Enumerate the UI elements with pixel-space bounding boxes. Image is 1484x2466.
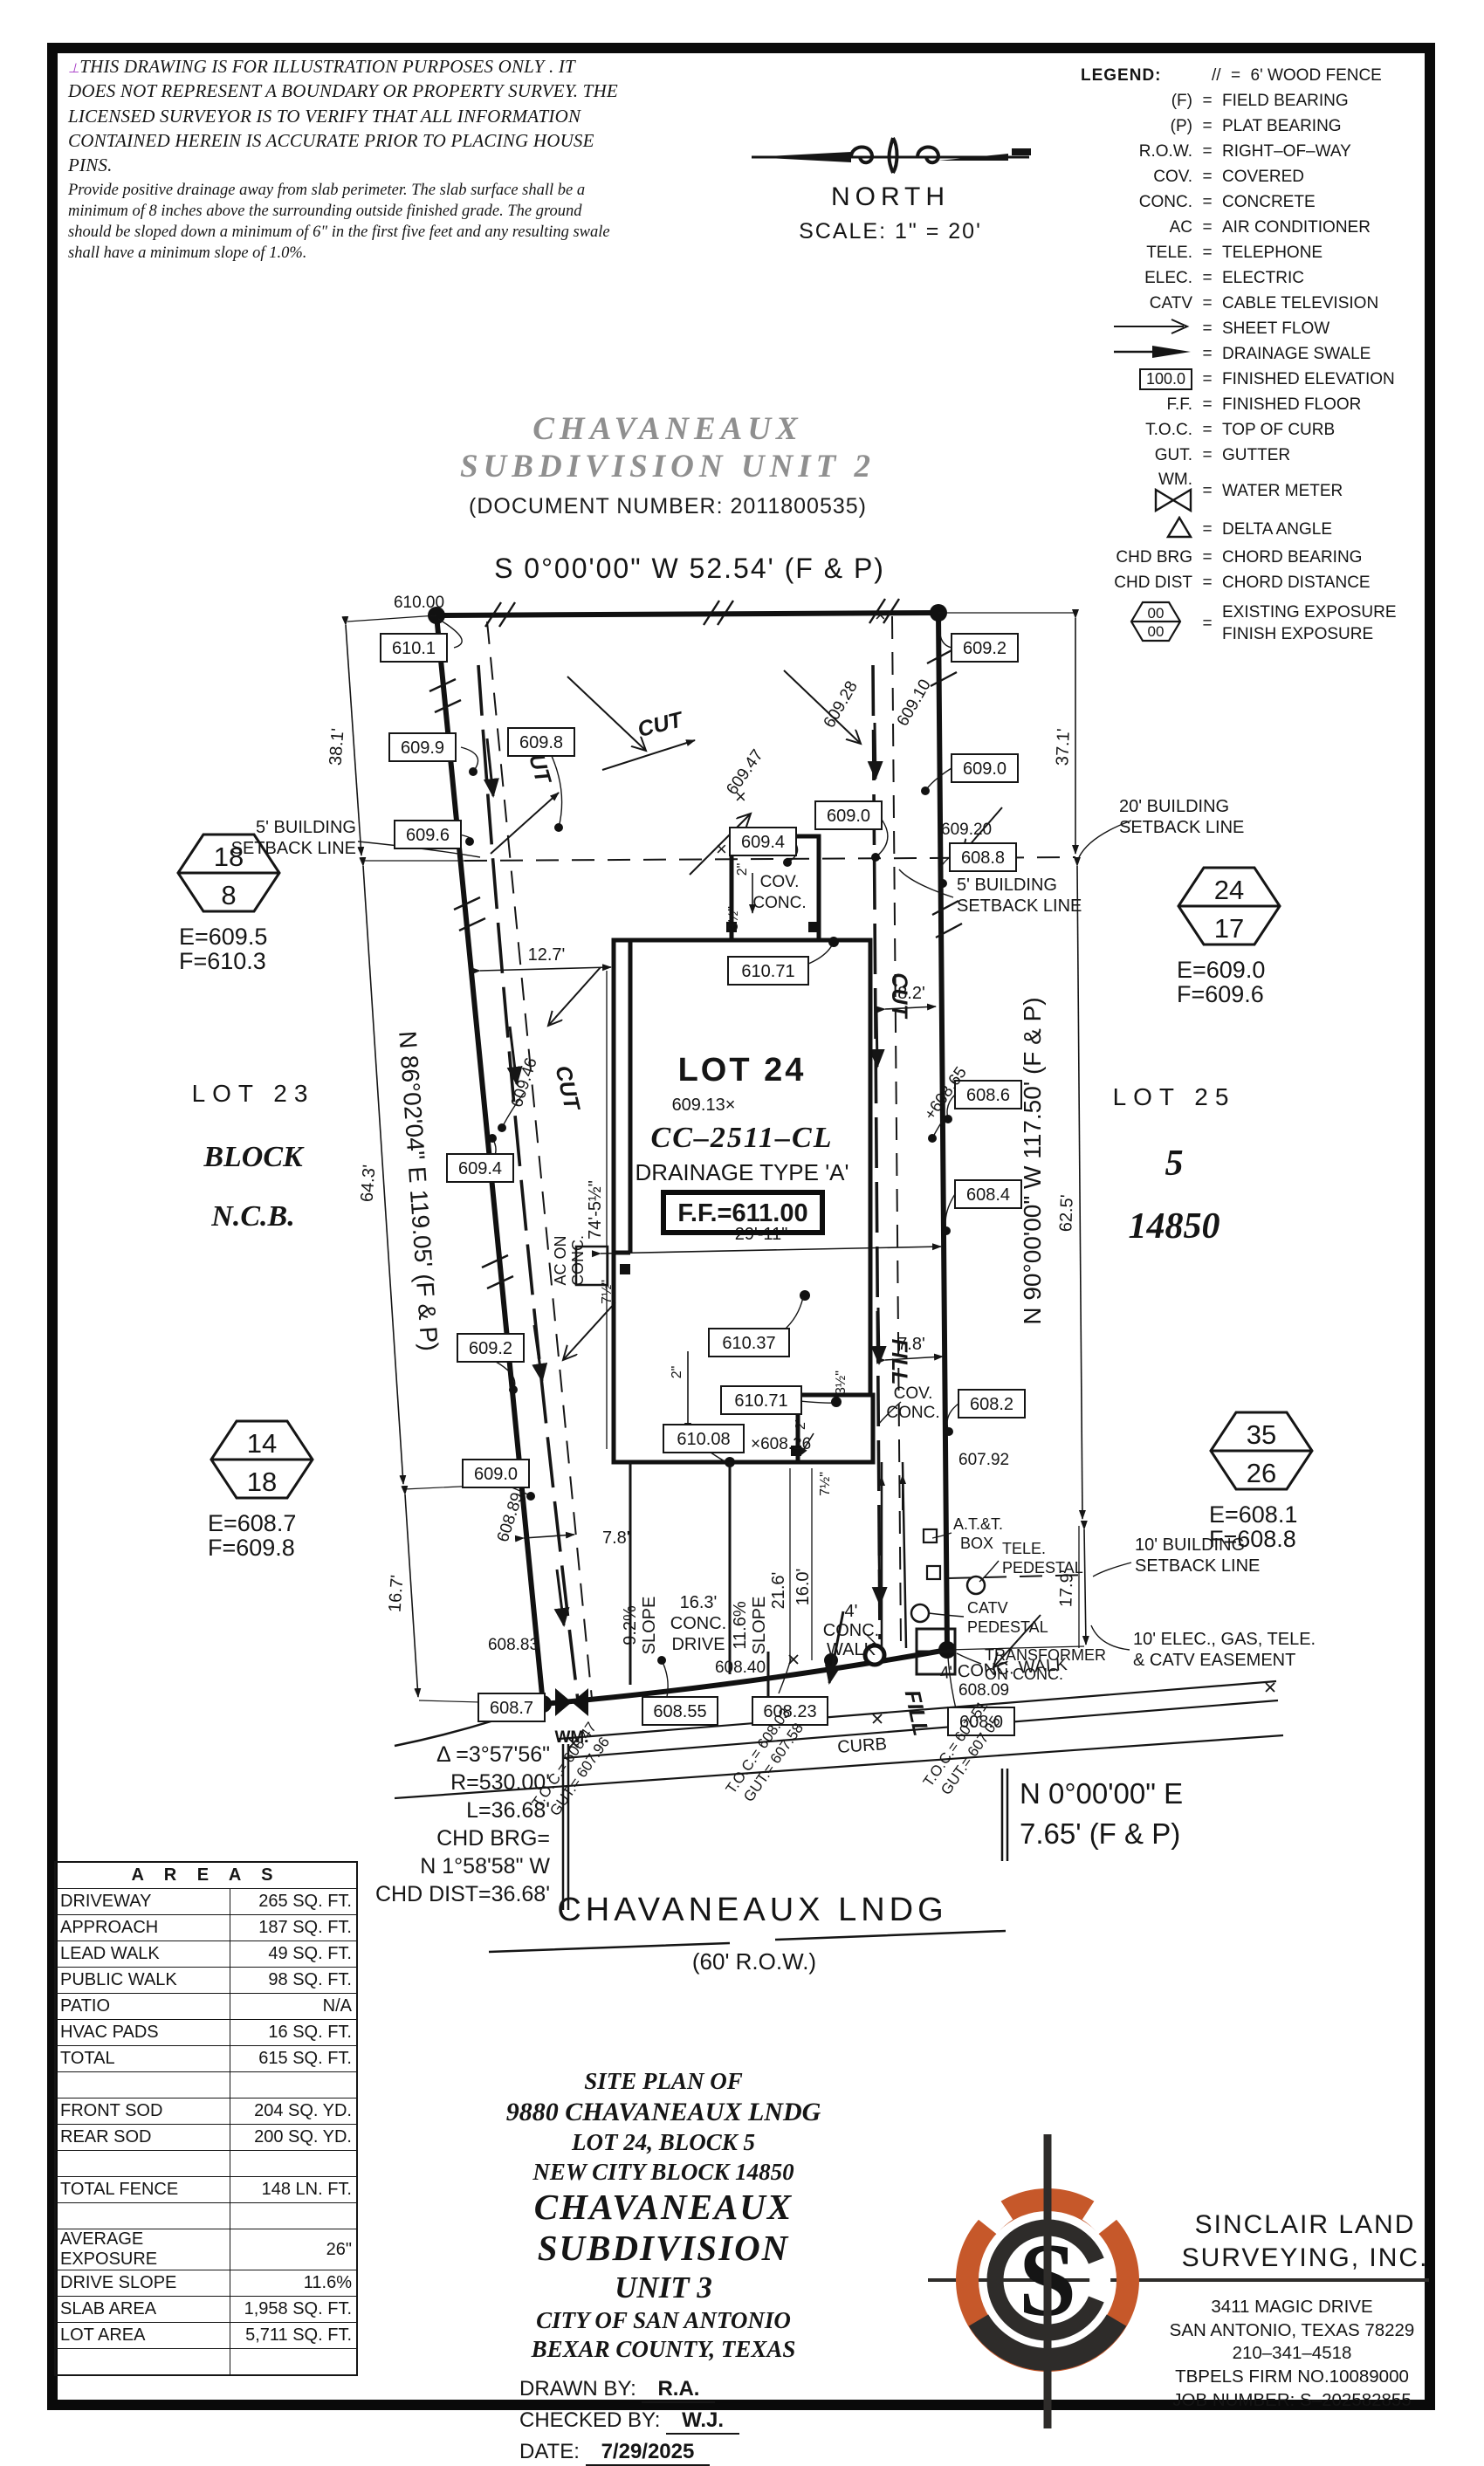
elev-box: 609.8: [508, 728, 574, 756]
svg-text:CONC.: CONC.: [886, 1404, 939, 1422]
areas-row: TOTAL615 SQ. FT.: [56, 2045, 356, 2071]
bearing-se: N 0°00'00" E 7.65' (F & P): [1002, 1769, 1183, 1861]
firm-name: SINCLAIR LANDSURVEYING, INC.: [1178, 2208, 1432, 2274]
svg-text:WALK: WALK: [827, 1640, 876, 1659]
svg-text:608.83: 608.83: [488, 1636, 539, 1654]
hex-se: 35 26 E=608.1 F=608.8: [1209, 1412, 1312, 1552]
areas-row: LEAD WALK49 SQ. FT.: [56, 1941, 356, 1967]
svg-text:7½": 7½": [818, 1472, 833, 1496]
svg-text:SETBACK LINE: SETBACK LINE: [231, 839, 356, 858]
svg-text:20' BUILDING: 20' BUILDING: [1119, 797, 1229, 816]
legend-row: CHD BRG=CHORD BEARING: [1081, 545, 1430, 570]
svg-text:26: 26: [1247, 1458, 1276, 1488]
disclaimer-note: ⊥THIS DRAWING IS FOR ILLUSTRATION PURPOS…: [68, 54, 618, 264]
elev-box: 610.71: [721, 1386, 801, 1414]
delta-angle-icon: [1166, 516, 1192, 539]
svg-text:16.7': 16.7': [386, 1574, 408, 1612]
firm-address: 3411 MAGIC DRIVE SAN ANTONIO, TEXAS 7822…: [1148, 2296, 1436, 2412]
svg-text:24: 24: [1214, 875, 1244, 905]
legend-row: (P)=PLAT BEARING: [1081, 113, 1430, 139]
elev-box: 608.7: [478, 1693, 545, 1721]
svg-text:CONC.: CONC.: [752, 894, 806, 912]
elev-box: 608.4: [955, 1180, 1021, 1208]
svg-text:SETBACK LINE: SETBACK LINE: [957, 896, 1082, 916]
svg-text:CUT: CUT: [550, 1063, 584, 1115]
exposure-hexagons: 18 8 E=609.5 F=610.3 24 17 E=609.0 F=609…: [178, 835, 1312, 1561]
svg-text:609.4: 609.4: [741, 833, 785, 852]
att-box-icon: [924, 1529, 937, 1542]
areas-row-blank: [56, 2150, 356, 2176]
catv-pedestal-icon: [911, 1604, 929, 1622]
svg-text:F=609.8: F=609.8: [208, 1535, 295, 1561]
svg-text:BOX: BOX: [960, 1535, 993, 1552]
svg-text:ON CONC.: ON CONC.: [985, 1666, 1063, 1683]
tele-pedestal-icon: [967, 1576, 985, 1594]
legend-row: CATV=CABLE TELEVISION: [1081, 291, 1430, 316]
svg-text:TELE.: TELE.: [1002, 1540, 1046, 1557]
svg-text:609.20: 609.20: [941, 821, 992, 839]
title-ncb: NEW CITY BLOCK 14850: [410, 2158, 917, 2188]
svg-text:BLOCK: BLOCK: [203, 1141, 305, 1173]
svg-text:CC–2511–CL: CC–2511–CL: [651, 1122, 834, 1154]
svg-text:E=609.5: E=609.5: [179, 924, 267, 950]
svg-text:PEDESTAL: PEDESTAL: [1002, 1559, 1083, 1576]
svg-text:610.00: 610.00: [394, 594, 444, 612]
elev-box: 609.4: [730, 828, 796, 855]
subdivision2-document-number: (DOCUMENT NUMBER: 2011800535): [367, 494, 969, 519]
svg-text:A.T.&T.: A.T.&T.: [953, 1515, 1003, 1533]
areas-row-blank: [56, 2348, 356, 2374]
svg-text:×608.26: ×608.26: [751, 1435, 811, 1453]
svg-text:CONC.: CONC.: [823, 1621, 879, 1640]
svg-text:CONC.: CONC.: [569, 1235, 587, 1286]
elev-box: 608.2: [958, 1390, 1025, 1418]
areas-row: REAR SOD200 SQ. YD.: [56, 2124, 356, 2150]
svg-text:TRANSFORMER: TRANSFORMER: [985, 1646, 1106, 1664]
svg-text:610.08: 610.08: [677, 1430, 730, 1449]
title-credits: DRAWN BY: R.A. CHECKED BY: W.J. DATE: 7/…: [519, 2377, 807, 2466]
bearing-east-line: N 90°00'00" W 117.50' (F & P): [1019, 997, 1046, 1324]
svg-text:608.2: 608.2: [970, 1395, 1013, 1414]
areas-row: AVERAGE EXPOSURE26": [56, 2229, 356, 2270]
svg-text:608.09: 608.09: [958, 1681, 1009, 1700]
svg-text:2': 2': [794, 1419, 808, 1430]
svg-text:2": 2": [670, 1366, 684, 1379]
svg-text:8.2': 8.2': [897, 984, 925, 1003]
svg-text:4': 4': [845, 1602, 858, 1621]
legend-row: TELE.=TELEPHONE: [1081, 240, 1430, 265]
subdivision2-line1: CHAVANEAUX: [367, 410, 969, 448]
firm-city: SAN ANTONIO, TEXAS 78229: [1148, 2319, 1436, 2343]
svg-text:5' BUILDING: 5' BUILDING: [256, 818, 356, 837]
svg-text:12.7': 12.7': [528, 945, 566, 965]
water-meter-icon: [555, 1688, 588, 1716]
svg-text:N.C.B.: N.C.B.: [210, 1200, 294, 1233]
svg-text:×: ×: [735, 786, 746, 807]
svg-text:608.7: 608.7: [490, 1699, 533, 1718]
title-address: 9880 CHAVANEAUX LNDG: [410, 2097, 917, 2128]
att-box-icon2: [927, 1566, 940, 1579]
svg-text:608.89: 608.89: [494, 1490, 527, 1544]
svg-text:(60' R.O.W.): (60' R.O.W.): [692, 1948, 816, 1975]
svg-text:38.1': 38.1': [326, 727, 348, 766]
areas-row: DRIVE SLOPE11.6%: [56, 2270, 356, 2296]
svg-text:608.8: 608.8: [961, 848, 1005, 868]
legend-row-drainage-swale: =DRAINAGE SWALE: [1081, 341, 1430, 367]
title-block: SITE PLAN OF 9880 CHAVANEAUX LNDG LOT 24…: [410, 2067, 917, 2466]
legend-row: COV.=COVERED: [1081, 164, 1430, 189]
svg-text:CHD DIST=36.68': CHD DIST=36.68': [375, 1882, 550, 1906]
utility-labels: A.T.&T. BOX TELE. PEDESTAL CATV PEDESTAL…: [953, 1515, 1106, 1683]
svg-text:N 0°00'00" E: N 0°00'00" E: [1020, 1777, 1183, 1810]
legend-row-water-meter: WM.=WATER METER: [1081, 468, 1430, 515]
svg-text:5' BUILDING: 5' BUILDING: [957, 876, 1057, 895]
svg-text:00: 00: [1148, 605, 1165, 622]
firm-phone: 210–341–4518: [1148, 2342, 1436, 2366]
svg-text:609.2: 609.2: [469, 1339, 512, 1358]
exposure-hex-icon: 0000: [1119, 595, 1192, 648]
title-line1: SITE PLAN OF: [410, 2067, 917, 2097]
elev-box: 609.2: [457, 1334, 524, 1362]
title-county: BEXAR COUNTY, TEXAS: [410, 2335, 917, 2365]
elev-box: 610.08: [663, 1425, 744, 1453]
elev-box: 608.8: [950, 843, 1016, 871]
areas-row: LOT AREA5,711 SQ. FT.: [56, 2322, 356, 2348]
svg-text:8: 8: [221, 880, 236, 910]
svg-text:SETBACK LINE: SETBACK LINE: [1135, 1556, 1260, 1576]
areas-row: PUBLIC WALK98 SQ. FT.: [56, 1967, 356, 1993]
legend-row: F.F.=FINISHED FLOOR: [1081, 392, 1430, 417]
svg-text:AC ON: AC ON: [552, 1235, 569, 1285]
svg-text:610.37: 610.37: [722, 1334, 775, 1353]
svg-text:18: 18: [214, 841, 244, 872]
svg-text:7½": 7½": [600, 1280, 615, 1304]
areas-row: PATION/A: [56, 1993, 356, 2019]
svg-text:LOT 25: LOT 25: [1113, 1083, 1236, 1110]
svg-text:609.6: 609.6: [406, 826, 450, 845]
elev-box: 610.37: [709, 1329, 789, 1357]
svg-text:16.3': 16.3': [680, 1593, 718, 1612]
areas-row-blank: [56, 2202, 356, 2229]
svg-text:3½": 3½": [726, 906, 741, 931]
elev-box: 609.9: [389, 733, 456, 761]
elev-box: 610.1: [381, 634, 447, 662]
svg-text:7.65' (F & P): 7.65' (F & P): [1020, 1817, 1180, 1850]
svg-text:CHD BRG=: CHD BRG=: [436, 1826, 550, 1851]
areas-row: DRIVEWAY265 SQ. FT.: [56, 1888, 356, 1914]
water-meter-legend-icon: [1154, 488, 1192, 512]
svg-text:17: 17: [1214, 913, 1244, 944]
svg-text:608.55: 608.55: [653, 1702, 706, 1721]
areas-row: TOTAL FENCE148 LN. FT.: [56, 2176, 356, 2202]
svg-text:E=608.7: E=608.7: [208, 1510, 296, 1536]
svg-text:610.71: 610.71: [734, 1391, 787, 1411]
svg-text:PEDESTAL: PEDESTAL: [967, 1618, 1048, 1636]
checked-by-label: CHECKED BY:: [519, 2408, 660, 2432]
svg-text:609.28: 609.28: [821, 678, 862, 732]
svg-text:3½": 3½": [834, 1370, 848, 1395]
svg-text:F=609.6: F=609.6: [1177, 981, 1264, 1007]
title-unit: UNIT 3: [410, 2270, 917, 2306]
survey-sheet: { "disclaimer": { "mark": "⊥", "p1": "TH…: [0, 0, 1484, 2444]
svg-text:18: 18: [247, 1467, 277, 1497]
svg-text:SETBACK LINE: SETBACK LINE: [1119, 818, 1244, 837]
checked-by-value: W.J.: [666, 2408, 739, 2435]
svg-text:609.4: 609.4: [458, 1159, 502, 1178]
svg-text:F=608.8: F=608.8: [1209, 1526, 1296, 1552]
elev-box: 609.0: [463, 1460, 529, 1487]
svg-text:21.6': 21.6': [769, 1572, 788, 1610]
svg-text:609.2: 609.2: [963, 639, 1007, 658]
svg-text:14: 14: [247, 1428, 277, 1459]
areas-row: FRONT SOD204 SQ. YD.: [56, 2098, 356, 2124]
svg-text:35: 35: [1247, 1419, 1276, 1450]
firm-job-number: JOB NUMBER: S–202582855: [1148, 2389, 1436, 2413]
bearing-north-line: S 0°00'00" W 52.54' (F & P): [494, 553, 885, 584]
elev-box: 608.55: [642, 1697, 718, 1725]
lot24-labels: LOT 24 609.13× CC–2511–CL DRAINAGE TYPE …: [636, 1052, 849, 1233]
svg-text:×: ×: [875, 604, 886, 626]
svg-text:608.40: 608.40: [715, 1659, 766, 1677]
svg-text:608.4: 608.4: [966, 1185, 1010, 1205]
areas-header: A R E A S: [56, 1863, 356, 1888]
legend-row: GUT.=GUTTER: [1081, 443, 1430, 468]
svg-text:E=609.0: E=609.0: [1177, 957, 1265, 983]
drawn-by-label: DRAWN BY:: [519, 2377, 636, 2401]
svg-text:Δ =3°57'56": Δ =3°57'56": [436, 1742, 550, 1767]
svg-text:609.0: 609.0: [963, 759, 1007, 779]
svg-text:609.0: 609.0: [827, 807, 870, 826]
svg-text:610.1: 610.1: [392, 639, 436, 658]
elev-box: 609.4: [447, 1154, 513, 1182]
svg-text:COV.: COV.: [894, 1384, 933, 1403]
elev-box: 608.23: [752, 1697, 828, 1725]
legend-row: (F)=FIELD BEARING: [1081, 88, 1430, 113]
svg-text:COV.: COV.: [760, 873, 800, 891]
svg-text:DRAINAGE TYPE 'A': DRAINAGE TYPE 'A': [636, 1159, 849, 1185]
date-label: DATE:: [519, 2440, 580, 2463]
svg-text:7.8': 7.8': [897, 1335, 925, 1354]
subdivision2-line2: SUBDIVISION UNIT 2: [367, 448, 969, 485]
svg-text:F.F.=611.00: F.F.=611.00: [677, 1199, 807, 1227]
svg-text:CATV: CATV: [967, 1599, 1008, 1617]
svg-text:62.5': 62.5': [1056, 1194, 1076, 1232]
firm-street: 3411 MAGIC DRIVE: [1148, 2296, 1436, 2319]
areas-row: HVAC PADS16 SQ. FT.: [56, 2019, 356, 2045]
hex-ne: 24 17 E=609.0 F=609.6: [1177, 868, 1280, 1007]
plumb-mark: ⊥: [68, 62, 79, 76]
title-city: CITY OF SAN ANTONIO: [410, 2306, 917, 2336]
legend-row: AC=AIR CONDITIONER: [1081, 215, 1430, 240]
svg-text:16.0': 16.0': [794, 1569, 813, 1606]
elev-box: 609.0: [952, 754, 1018, 782]
svg-text:CONC.: CONC.: [670, 1614, 726, 1633]
disclaimer-paragraph-2: Provide positive drainage away from slab…: [68, 180, 618, 264]
legend-row-finished-elevation: 100.0=FINISHED ELEVATION: [1081, 367, 1430, 392]
title-subdivision: CHAVANEAUX SUBDIVISION: [410, 2187, 917, 2269]
svg-text:00: 00: [1148, 623, 1165, 640]
title-lot-block: LOT 24, BLOCK 5: [410, 2128, 917, 2158]
svg-text:610.71: 610.71: [741, 962, 794, 981]
bearing-west-line: N 86°02'04" E 119.05' (F & P): [394, 1030, 443, 1352]
svg-text:2": 2": [735, 863, 750, 876]
legend-row-exposure: 0000 = EXISTING EXPOSUREFINISH EXPOSURE: [1081, 595, 1430, 653]
legend-row-delta: =DELTA ANGLE: [1081, 515, 1430, 545]
svg-text:609.13×: 609.13×: [672, 1096, 736, 1115]
hex-sw: 14 18 E=608.7 F=609.8: [208, 1421, 313, 1561]
areas-row: SLAB AREA1,958 SQ. FT.: [56, 2296, 356, 2322]
legend-row: CONC.=CONCRETE: [1081, 189, 1430, 215]
elev-box: 609.2: [952, 634, 1018, 662]
elev-box: 609.6: [395, 821, 461, 848]
svg-text:DRIVE: DRIVE: [671, 1635, 725, 1654]
svg-text:CUT: CUT: [636, 707, 687, 742]
disclaimer-paragraph-1: ⊥THIS DRAWING IS FOR ILLUSTRATION PURPOS…: [68, 54, 618, 178]
legend-row: ELEC.=ELECTRIC: [1081, 265, 1430, 291]
svg-text:×: ×: [716, 838, 727, 860]
svg-text:5: 5: [1165, 1144, 1184, 1184]
svg-text:607.92: 607.92: [958, 1451, 1009, 1469]
svg-text:10' ELEC., GAS, TELE.: 10' ELEC., GAS, TELE.: [1133, 1630, 1316, 1649]
svg-text:CHAVANEAUX LNDG: CHAVANEAUX LNDG: [557, 1892, 947, 1928]
legend-row: LEGEND://=6' WOOD FENCE: [1081, 63, 1430, 88]
drainage-swale-icon: [1114, 344, 1192, 360]
svg-text:608.6: 608.6: [966, 1086, 1010, 1105]
svg-text:64.3': 64.3': [358, 1164, 380, 1202]
svg-text:F=610.3: F=610.3: [179, 948, 266, 974]
svg-text:LOT 23: LOT 23: [192, 1080, 315, 1107]
areas-table: A R E A S DRIVEWAY265 SQ. FT. APPROACH18…: [54, 1861, 358, 2376]
svg-text:74'-5½": 74'-5½": [586, 1180, 605, 1240]
svg-text:& CATV EASEMENT: & CATV EASEMENT: [1133, 1651, 1295, 1670]
svg-text:SLOPE: SLOPE: [640, 1597, 659, 1655]
firm-license: TBPELS FIRM NO.10089000: [1148, 2366, 1436, 2389]
svg-text:11.6%: 11.6%: [731, 1601, 750, 1649]
surveyor-firm-block: S SINCLAIR LANDSURVEYING, INC. 3411 MAGI…: [925, 2086, 1432, 2440]
svg-text:609.8: 609.8: [519, 733, 563, 752]
north-label: NORTH: [738, 182, 1043, 212]
legend: LEGEND://=6' WOOD FENCE (F)=FIELD BEARIN…: [1081, 63, 1430, 653]
north-arrow-icon: [746, 131, 1034, 176]
svg-text:609.0: 609.0: [474, 1465, 518, 1484]
svg-text:37.1': 37.1': [1053, 728, 1073, 766]
areas-row-blank: [56, 2071, 356, 2098]
legend-row: T.O.C.=TOP OF CURB: [1081, 417, 1430, 443]
sheet-flow-icon: [1114, 319, 1192, 334]
legend-row: CHD DIST=CHORD DISTANCE: [1081, 570, 1430, 595]
elev-box: 610.71: [728, 957, 808, 985]
adjacent-subdivision-title: CHAVANEAUX SUBDIVISION UNIT 2 (DOCUMENT …: [367, 410, 969, 519]
svg-text:CURB: CURB: [837, 1734, 888, 1757]
elev-box: 608.6: [955, 1081, 1021, 1109]
legend-row-sheet-flow: =SHEET FLOW: [1081, 316, 1430, 341]
svg-text:N 1°58'58" W: N 1°58'58" W: [420, 1854, 550, 1879]
svg-text:609.10: 609.10: [894, 677, 935, 730]
elev-box: 609.0: [815, 801, 882, 829]
north-arrow-block: NORTH SCALE: 1" = 20': [738, 131, 1043, 244]
svg-text:14850: 14850: [1129, 1206, 1220, 1247]
drawn-by-value: R.A.: [642, 2377, 715, 2403]
curve-data: Δ =3°57'56" R=530.00' L=36.68' CHD BRG= …: [375, 1742, 550, 1906]
svg-text:609.9: 609.9: [401, 738, 444, 758]
scale-label: SCALE: 1" = 20': [738, 219, 1043, 244]
svg-text:7.8': 7.8': [602, 1528, 630, 1548]
svg-text:9.2%: 9.2%: [621, 1605, 640, 1645]
svg-text:SLOPE: SLOPE: [750, 1597, 769, 1655]
legend-row: R.O.W.=RIGHT–OF–WAY: [1081, 139, 1430, 164]
svg-text:LOT 24: LOT 24: [678, 1052, 807, 1089]
svg-text:E=608.1: E=608.1: [1209, 1501, 1297, 1528]
areas-row: APPROACH187 SQ. FT.: [56, 1914, 356, 1941]
